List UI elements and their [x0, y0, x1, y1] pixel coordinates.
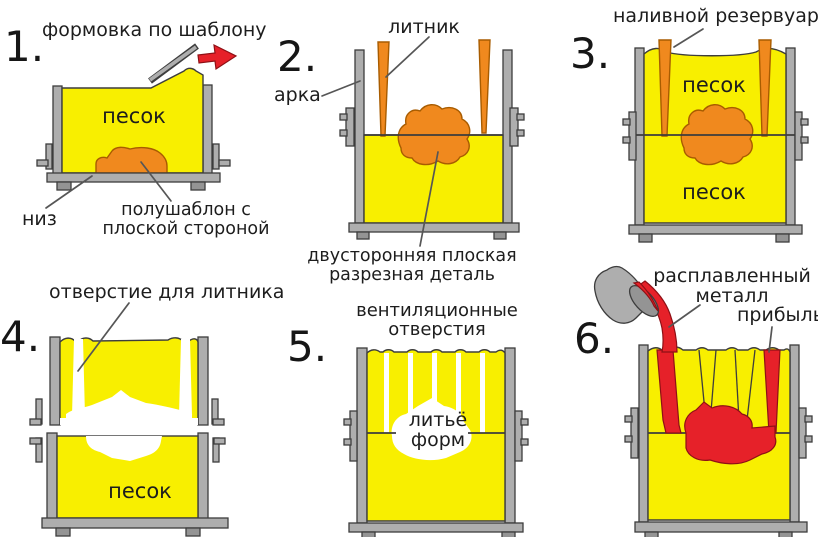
drag-lug-left	[30, 438, 42, 462]
leader-reservoir	[674, 29, 703, 47]
step3-number: 3.	[570, 33, 610, 75]
step5-cast-line2: форм	[388, 430, 488, 450]
step5-vents-label: вентиляционные отверстия	[352, 301, 522, 339]
board-foot	[776, 234, 789, 242]
board-foot	[191, 182, 205, 190]
step1-bottom-label: низ	[22, 209, 57, 229]
flask-wall-right	[790, 345, 799, 522]
bottom-board	[42, 518, 228, 528]
bottom-board	[349, 523, 523, 532]
parting-face	[60, 418, 198, 425]
step2-sprue-label: литник	[374, 17, 474, 37]
step4-number: 4.	[0, 316, 40, 358]
flask-wall-right	[505, 348, 515, 523]
leader-arch	[322, 81, 360, 96]
board-foot	[57, 182, 71, 190]
board-foot	[779, 532, 792, 537]
step2-part-label: двусторонняя плоская разрезная деталь	[292, 247, 532, 284]
bottom-board	[349, 223, 519, 232]
step5-cast-label: литьё форм	[388, 410, 488, 450]
board-foot	[186, 528, 200, 536]
step3-sand-top-label: песок	[664, 74, 764, 96]
cope-lug-right	[212, 399, 224, 425]
flask-wall-right	[203, 85, 212, 177]
cope-wall-right	[198, 337, 208, 425]
step2-number: 2.	[277, 36, 317, 78]
board-foot	[502, 532, 515, 537]
sprue-hole-left	[72, 339, 85, 416]
drag-lug-right	[213, 438, 225, 462]
step6-metal-line1: расплавленный	[642, 266, 818, 286]
sprue-pin-left	[378, 42, 389, 136]
bottom-board	[47, 173, 220, 182]
leader-sprue	[386, 37, 429, 77]
step4-sand-label: песок	[90, 480, 190, 502]
flask-lug-left	[37, 144, 52, 169]
step2-arch-label: арка	[274, 85, 321, 105]
clamp-right	[515, 411, 528, 461]
sand-casting-process-diagram: 1. формовка по шаблону песок низ полушаб…	[0, 0, 818, 537]
step3-reservoir-label: наливной резервуар	[613, 6, 813, 26]
board-foot	[494, 232, 506, 239]
clamp-right	[795, 112, 808, 160]
board-foot	[56, 528, 70, 536]
flask-wall-right	[786, 48, 795, 225]
step6-number: 6.	[574, 318, 614, 360]
step2-figure	[322, 37, 524, 246]
clamp-left	[344, 411, 357, 461]
step2-part-line2: разрезная деталь	[292, 266, 532, 285]
flask-wall-left	[53, 86, 62, 177]
cope-lug-left	[30, 399, 42, 425]
drag-wall-right	[198, 433, 208, 520]
step5-cast-line1: литьё	[388, 410, 488, 430]
step6-metal-label: расплавленный металл	[642, 266, 818, 306]
clamp-right	[799, 408, 812, 458]
step6-metal-line2: металл	[642, 286, 818, 306]
board-foot	[639, 234, 652, 242]
bottom-board	[635, 522, 807, 532]
clamp-left	[625, 408, 638, 458]
sprue-hole-right	[179, 339, 192, 416]
step3-sand-bottom-label: песок	[664, 181, 764, 203]
step5-vents-line1: вентиляционные	[352, 301, 522, 320]
step3-figure	[623, 29, 808, 242]
step1-pattern-line2: плоской стороной	[96, 220, 276, 239]
board-foot	[362, 532, 375, 537]
drag-wall-left	[47, 433, 57, 520]
step1-sand-label: песок	[84, 105, 184, 127]
board-foot	[645, 532, 658, 537]
arch-post-left	[355, 50, 364, 223]
step1-pattern-label: полушаблон с плоской стороной	[96, 201, 276, 238]
step2-part-line1: двусторонняя плоская	[292, 247, 532, 266]
step6-riser-label: прибыль	[737, 305, 818, 325]
direction-arrow	[198, 45, 236, 69]
step5-number: 5.	[287, 326, 327, 368]
step4-hole-label: отверстие для литника	[49, 282, 269, 302]
clamp-right	[510, 108, 524, 146]
flask-wall-left	[639, 345, 648, 522]
flask-wall-left	[357, 348, 367, 523]
step1-pattern-line1: полушаблон с	[96, 201, 276, 220]
flask-lug-right	[213, 144, 230, 169]
step5-vents-line2: отверстия	[352, 320, 522, 339]
board-foot	[357, 232, 369, 239]
clamp-left	[623, 112, 636, 160]
bottom-board	[629, 225, 802, 234]
sprue-pin-right	[479, 40, 490, 133]
step1-number: 1.	[4, 26, 44, 68]
leader-metal	[669, 305, 700, 327]
step1-title: формовка по шаблону	[42, 20, 262, 40]
clamp-left	[340, 108, 354, 146]
cope-wall-left	[50, 337, 60, 425]
